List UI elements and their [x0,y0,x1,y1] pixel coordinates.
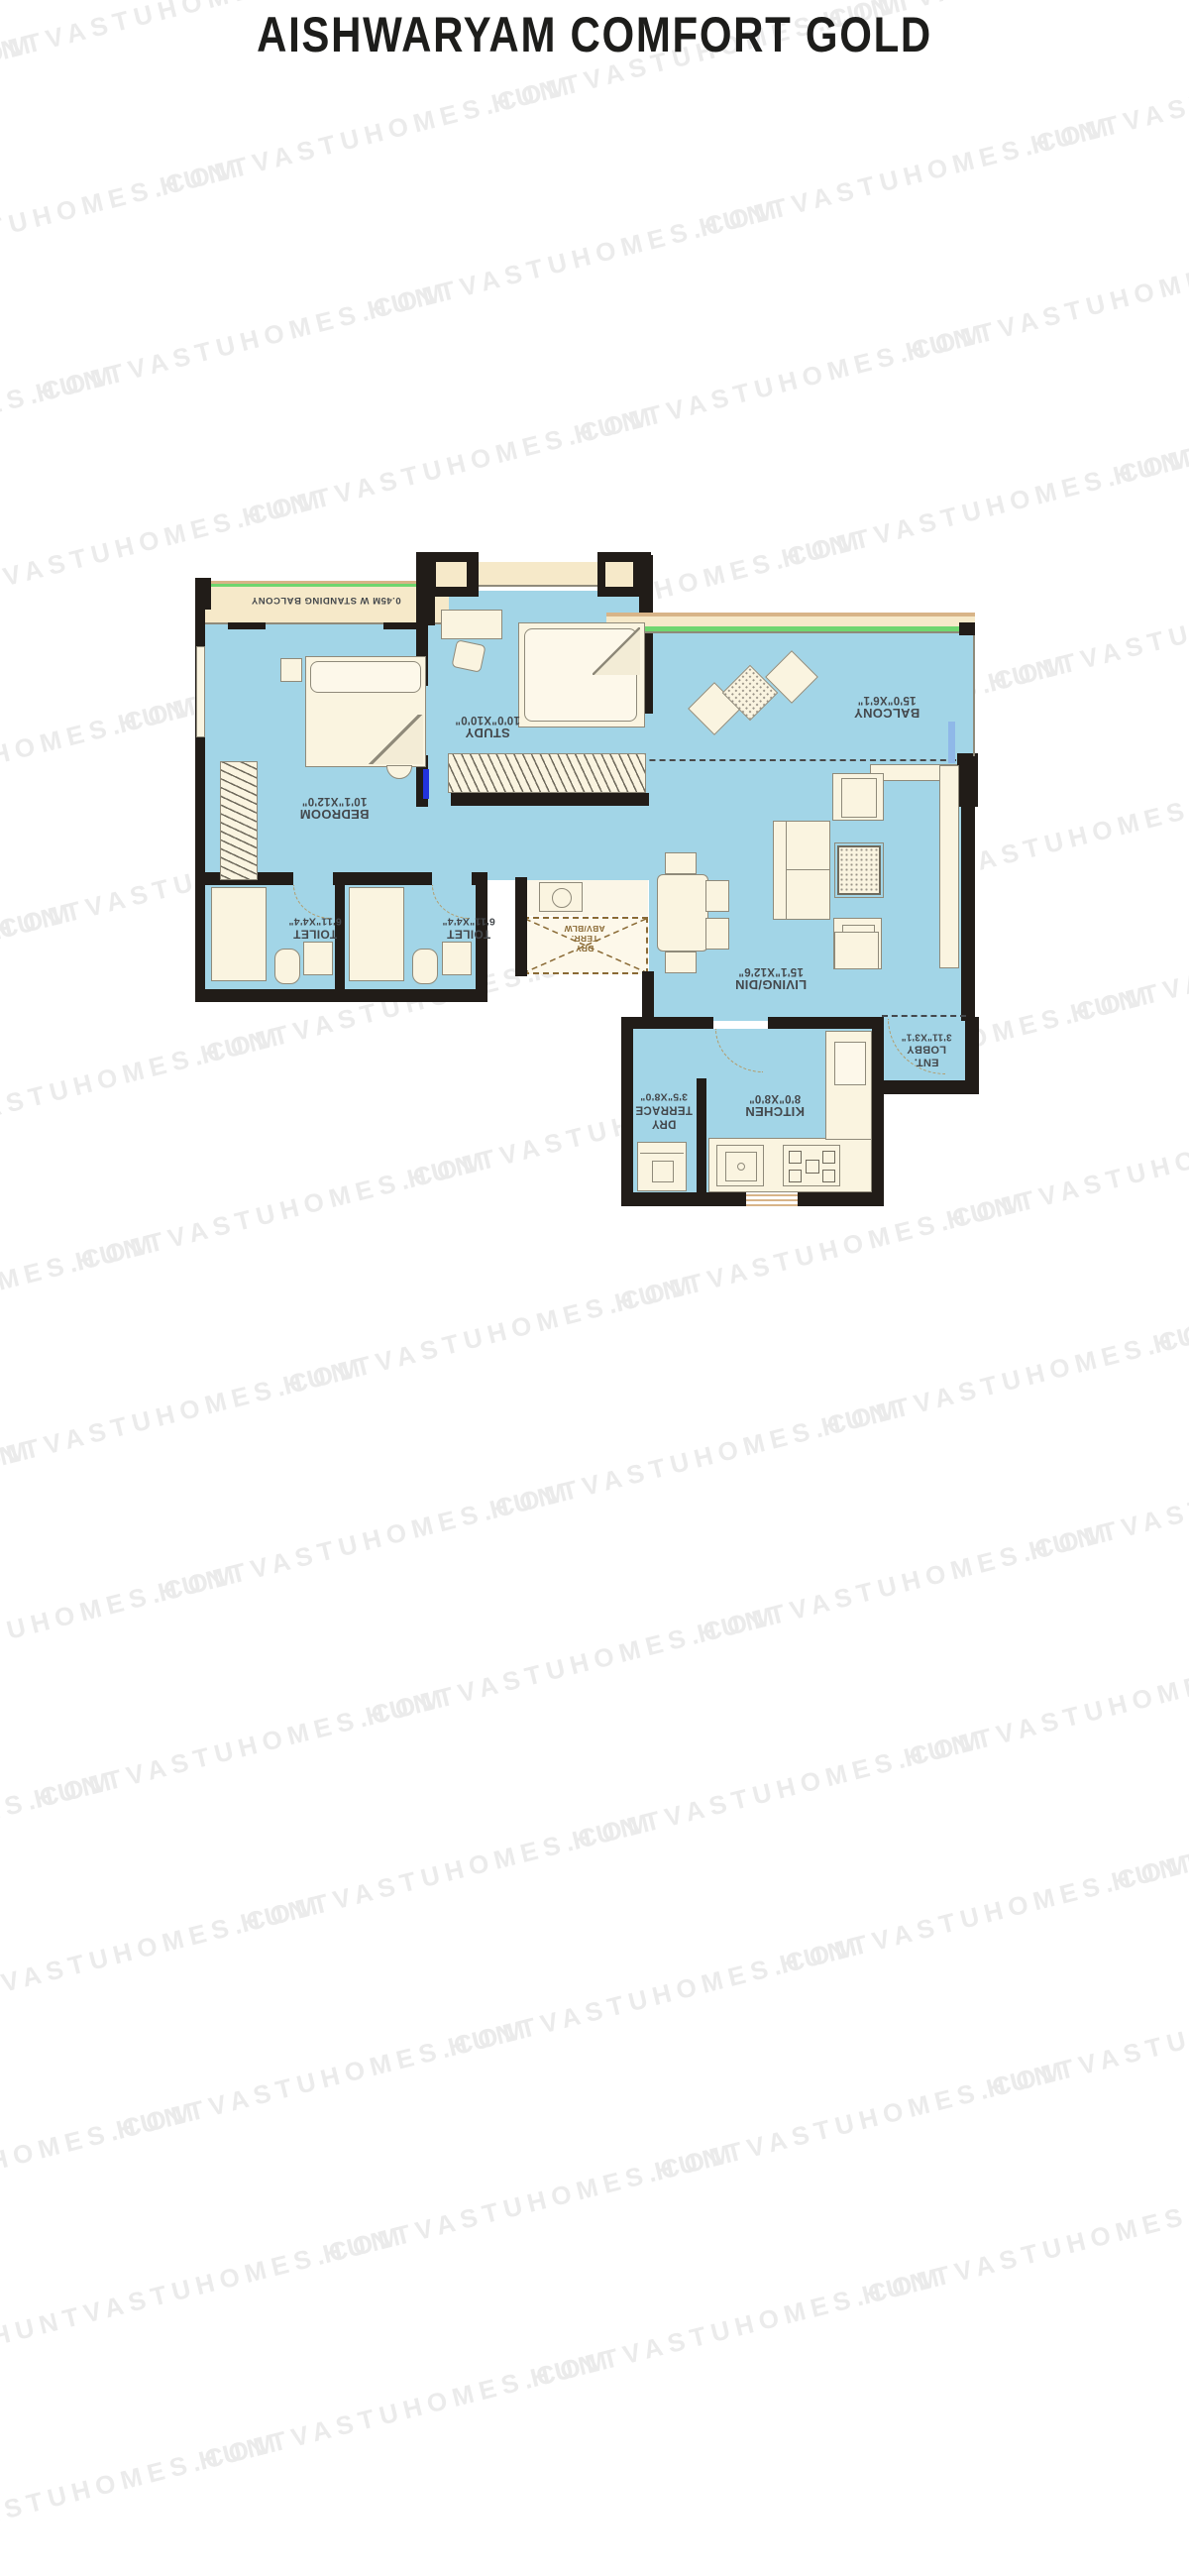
washing-machine [637,1142,687,1191]
room-name: 0.45M W STANDING BALCONY [213,595,439,606]
watermark-text: HUNTVASTUHOMES.COM [195,2344,615,2477]
watermark-text: HUNTVASTUHOMES.COM [0,1889,326,2022]
sofa-cushion-line [786,869,829,870]
balcony-top-band [606,613,975,634]
room-dims: 6'11"X4'4" [413,915,524,927]
sofa-backrest [774,822,787,919]
kitchen-stove [783,1145,840,1186]
watermark-text: HUNTVASTUHOMES.COM [569,1724,989,1856]
washbasin [539,882,583,912]
study-top-window [479,562,597,587]
watermark-text: HUNTVASTUHOMES.COM [113,2013,533,2146]
lobby-right-wall [965,1017,979,1094]
room-dims: 6'11"X4'4" [260,915,371,927]
toilet1-basin [303,942,333,975]
room-name: LIVING/DIN [702,977,840,992]
kitchen-platform-right [825,1031,872,1140]
toilet1-shower [211,887,267,981]
balcony-edge-line [973,635,975,756]
stove-center [806,1160,819,1174]
watermark-text: HUNTVASTUHOMES.COM [777,1848,1189,1980]
balcony-end-cap [959,622,975,635]
study-bottom-wall [451,793,649,806]
burner [789,1151,802,1164]
watermark-text: HUNTVASTUHOMES.COM [859,2179,1189,2311]
kitchen-top-wall-left [621,1017,713,1029]
balcony-corner-column [957,753,978,807]
burner [789,1170,802,1182]
bedroom-nightstand [280,658,302,682]
room-dims: 15'0"X6'1" [827,692,946,706]
label-line: ABV/BLW [545,924,624,934]
kitchen-top-wall-right [768,1017,879,1029]
watermark-text: HUNTVASTUHOMES.COM [0,2426,284,2559]
room-label-dry-terrace: DRY TERRACE 3'5"X8'0" [614,1090,713,1130]
room-name: TOILET [260,927,371,941]
room-label-toilet2: TOILET 6'11"X4'4" [413,915,524,942]
balcony-door-marker [948,722,955,763]
washbasin-bowl [552,888,572,908]
washing-machine-top [640,1145,684,1154]
watermark-text: HUNTVASTUHOMES.COM [0,2095,202,2228]
dining-chair [665,852,697,874]
armchair [832,773,884,821]
room-name: STUDY [428,726,547,740]
floor-plan: 0.45M W STANDING BALCONY BEDROOM 10'1"X1… [0,0,1189,1682]
wall-left-outer [195,580,205,1001]
room-dims: 3'11"X3'1" [887,1031,966,1043]
entry-cabinet [834,932,879,969]
room-name: DRY [614,1116,713,1130]
room-label-living: LIVING/DIN 15'1"X12'6" [702,963,840,992]
room-label-kitchen: KITCHEN 8'0"X8'0" [705,1090,844,1119]
room-label-balcony: BALCONY 15'0"X6'1" [827,692,946,721]
column-core [605,562,633,587]
bedroom-door-marker [423,769,429,799]
toilet2-door-gap [432,872,472,885]
fridge [834,1042,866,1085]
bed-duvet [310,661,421,693]
burner [822,1151,835,1164]
room-label-ent-lobby: ENT. LOBBY 3'11"X3'1" [887,1031,966,1068]
room-dims: 10'0"X10'0" [428,712,547,726]
wall-segment [228,622,266,629]
band-line [606,631,975,633]
watermark-text: HUNTVASTUHOMES.COM [445,1931,865,2064]
watermark-text: HUNTVASTUHOMES.COM [983,1971,1189,2104]
room-dims: 15'1"X12'6" [702,963,840,977]
tv-unit [939,765,959,968]
watermark-text: HUNTVASTUHOMES.COM [0,1765,120,1898]
washing-machine-drum [652,1161,674,1182]
lobby-left-wall [872,1017,884,1090]
lobby-bottom-wall [880,1080,979,1094]
room-name: KITCHEN [705,1104,844,1119]
dining-chair [705,880,729,912]
label-line: DRY [545,944,624,953]
room-name: LOBBY [887,1043,966,1056]
study-chair [451,639,486,673]
burner [822,1170,835,1182]
sofa [773,821,830,920]
bedroom-bed [305,656,426,767]
watermark-text: HUNTVASTUHOMES.COM [652,2055,1072,2187]
study-wardrobe [448,753,646,793]
room-name: BALCONY [827,706,946,721]
toilet1-wc [274,949,300,984]
room-dims: 10'1"X12'0" [268,793,401,807]
bedroom-window [196,646,205,737]
bed-fold [368,715,423,764]
lobby-entry-dashed [882,1015,966,1017]
room-label-toilet1: TOILET 6'11"X4'4" [260,915,371,942]
column-core [436,562,467,587]
watermark-text: HUNTVASTUHOMES.COM [0,2220,408,2353]
room-name: ENT. [887,1056,966,1068]
dining-chair [705,918,729,950]
room-label-dry-terr-abv: DRY TERR. ABV/BLW [545,924,624,953]
passage-floor [479,799,649,880]
label-line: TERR. [545,934,624,944]
armchair-seat [841,778,877,818]
toilets-bottom-wall [195,989,487,1002]
room-label-standing-balcony: 0.45M W STANDING BALCONY [213,595,439,606]
room-name: TOILET [413,927,524,941]
study-bed-fold [593,627,640,675]
kitchen-window [746,1192,798,1206]
room-dims: 8'0"X8'0" [705,1090,844,1104]
watermark-text: HUNTVASTUHOMES.COM [238,1806,658,1939]
kitchen-sink [716,1145,764,1186]
living-right-wall [961,805,975,1021]
toilet2-basin [442,942,472,975]
balcony-living-dashed [609,759,956,761]
toilet2-wc [412,949,438,984]
sink-drain [737,1163,745,1171]
study-desk [441,610,502,639]
watermark-text: HUNTVASTUHOMES.COM [527,2261,947,2394]
room-name: BEDROOM [268,807,401,822]
watermark-text: HUNTVASTUHOMES.COM [31,1682,451,1815]
watermark-text: HUNTVASTUHOMES.COM [1109,1765,1189,1898]
watermark-text: HUNTVASTUHOMES.COM [320,2137,740,2270]
toilet1-door-gap [293,872,333,885]
dining-chair [665,952,697,973]
bedroom-wardrobe [220,761,258,880]
room-label-study: STUDY 10'0"X10'0" [428,712,547,740]
room-name: TERRACE [614,1102,713,1116]
room-dims: 3'5"X8'0" [614,1090,713,1102]
band-cream [606,616,975,626]
dining-table [657,874,708,952]
coffee-table [837,845,881,895]
room-label-bedroom: BEDROOM 10'1"X12'0" [268,793,401,822]
